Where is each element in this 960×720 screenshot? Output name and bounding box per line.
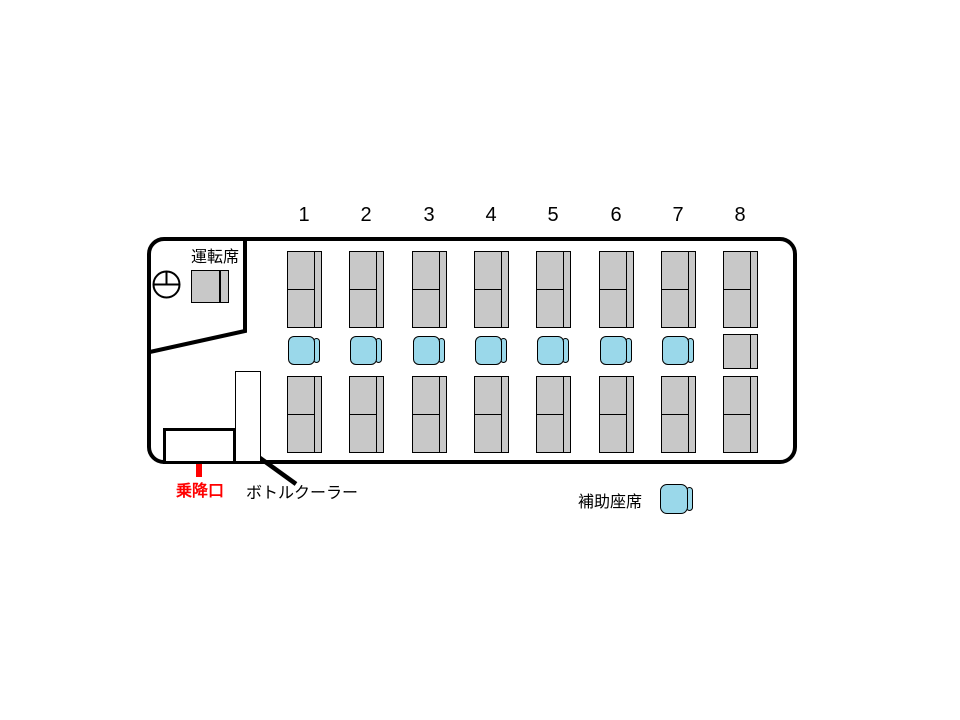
seat-edge-line <box>688 252 690 327</box>
seat-divider-line <box>662 289 688 291</box>
seat-divider-line <box>662 414 688 416</box>
column-label-5: 5 <box>536 204 570 227</box>
column-label-3: 3 <box>412 204 446 227</box>
seat-edge-line <box>688 377 690 452</box>
aux-seat-col-1 <box>288 336 321 365</box>
entrance-box <box>163 428 236 464</box>
seat-divider-line <box>350 289 376 291</box>
bottle-cooler-box <box>235 371 261 461</box>
column-label-6: 6 <box>599 204 633 227</box>
aux-seat-cushion <box>475 336 502 365</box>
rear-seat-col-4 <box>474 376 509 453</box>
aux-seat-legend-icon <box>660 484 694 515</box>
aux-seat-col-4 <box>475 336 508 365</box>
rear-seat-col-2 <box>349 376 384 453</box>
seat-divider-line <box>537 414 563 416</box>
seat-divider-line <box>724 289 750 291</box>
middle-seat-col-8 <box>723 334 758 369</box>
front-seat-col-6 <box>599 251 634 328</box>
aux-seat-col-3 <box>413 336 446 365</box>
rear-seat-col-1 <box>287 376 322 453</box>
seat-divider-line <box>288 414 314 416</box>
seat-divider-line <box>600 414 626 416</box>
seat-edge-line <box>439 377 441 452</box>
seat-edge-line <box>376 252 378 327</box>
seat-divider-line <box>413 414 439 416</box>
aux-seat-col-5 <box>537 336 570 365</box>
bus-seating-diagram: 運転席 12345678 乗降口 ボトルクーラー 補助座席 <box>0 0 960 720</box>
aux-seat-cushion <box>288 336 315 365</box>
seat-divider-line <box>475 289 501 291</box>
rear-seat-col-6 <box>599 376 634 453</box>
column-label-2: 2 <box>349 204 383 227</box>
aux-seat-cushion <box>660 484 688 514</box>
front-seat-col-2 <box>349 251 384 328</box>
seat-edge-line <box>750 377 752 452</box>
front-seat-col-4 <box>474 251 509 328</box>
column-label-8: 8 <box>723 204 757 227</box>
seat-edge-line <box>626 377 628 452</box>
seat-divider-line <box>600 289 626 291</box>
seat-edge-line <box>501 377 503 452</box>
seat-divider-line <box>724 414 750 416</box>
driver-seat <box>191 270 229 303</box>
seat-edge-line <box>314 377 316 452</box>
seat-edge-line <box>750 335 752 368</box>
seat-edge-line <box>501 252 503 327</box>
seat-divider-line <box>288 289 314 291</box>
front-seat-col-5 <box>536 251 571 328</box>
driver-seat-label: 運転席 <box>184 243 246 267</box>
rear-seat-col-3 <box>412 376 447 453</box>
seat-edge-line <box>219 271 221 302</box>
seat-edge-line <box>626 252 628 327</box>
front-seat-col-7 <box>661 251 696 328</box>
seat-edge-line <box>563 377 565 452</box>
front-seat-col-8 <box>723 251 758 328</box>
aux-seat-col-7 <box>662 336 695 365</box>
seat-divider-line <box>475 414 501 416</box>
rear-seat-col-7 <box>661 376 696 453</box>
front-seat-col-1 <box>287 251 322 328</box>
column-label-7: 7 <box>661 204 695 227</box>
seat-divider-line <box>537 289 563 291</box>
seat-edge-line <box>750 252 752 327</box>
seat-divider-line <box>413 289 439 291</box>
aux-seat-cushion <box>600 336 627 365</box>
front-seat-col-3 <box>412 251 447 328</box>
column-label-4: 4 <box>474 204 508 227</box>
aux-seat-col-6 <box>600 336 633 365</box>
seat-divider-line <box>350 414 376 416</box>
legend-label: 補助座席 <box>578 488 642 512</box>
aux-seat-cushion <box>662 336 689 365</box>
bottle-cooler-label: ボトルクーラー <box>246 479 358 503</box>
seat-edge-line <box>314 252 316 327</box>
column-label-1: 1 <box>287 204 321 227</box>
rear-seat-col-5 <box>536 376 571 453</box>
aux-seat-cushion <box>350 336 377 365</box>
aux-seat-cushion <box>413 336 440 365</box>
entrance-label: 乗降口 <box>168 477 232 501</box>
rear-seat-col-8 <box>723 376 758 453</box>
seat-edge-line <box>376 377 378 452</box>
aux-seat-cushion <box>537 336 564 365</box>
seat-edge-line <box>439 252 441 327</box>
seat-edge-line <box>563 252 565 327</box>
aux-seat-col-2 <box>350 336 383 365</box>
